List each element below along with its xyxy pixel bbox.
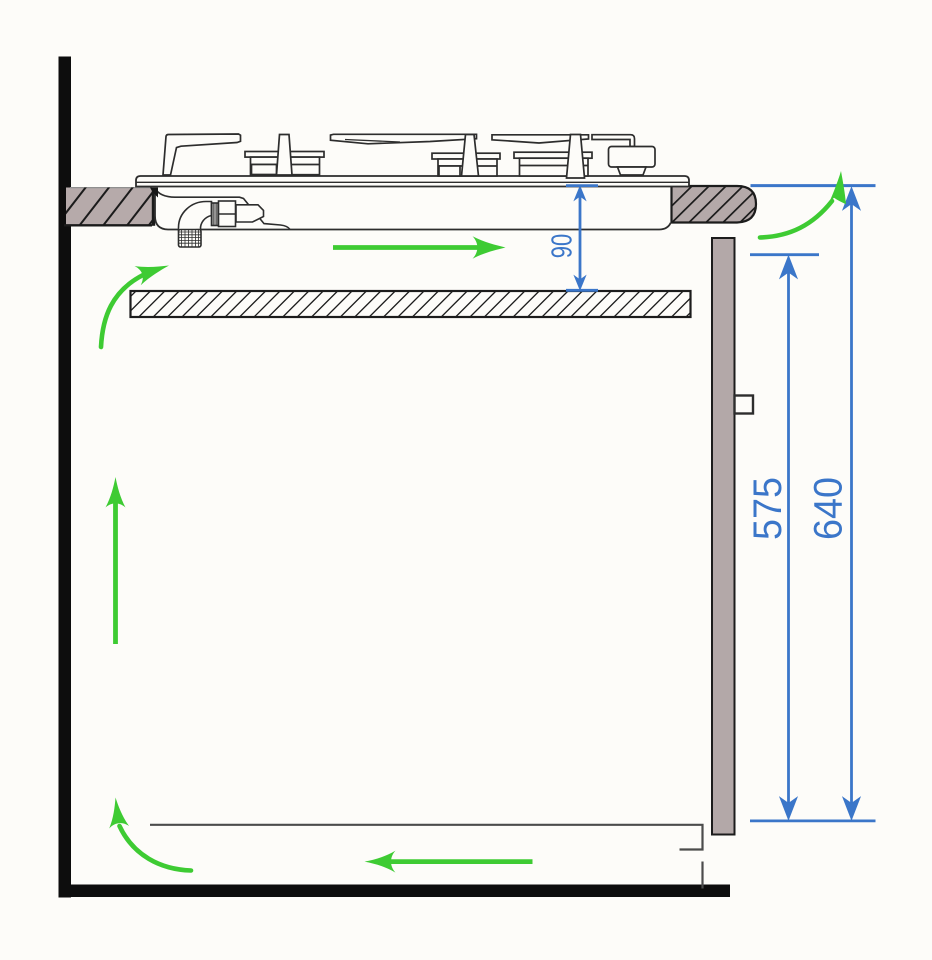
svg-text:90: 90	[547, 234, 579, 259]
svg-text:575: 575	[746, 477, 790, 540]
svg-text:640: 640	[807, 477, 851, 540]
